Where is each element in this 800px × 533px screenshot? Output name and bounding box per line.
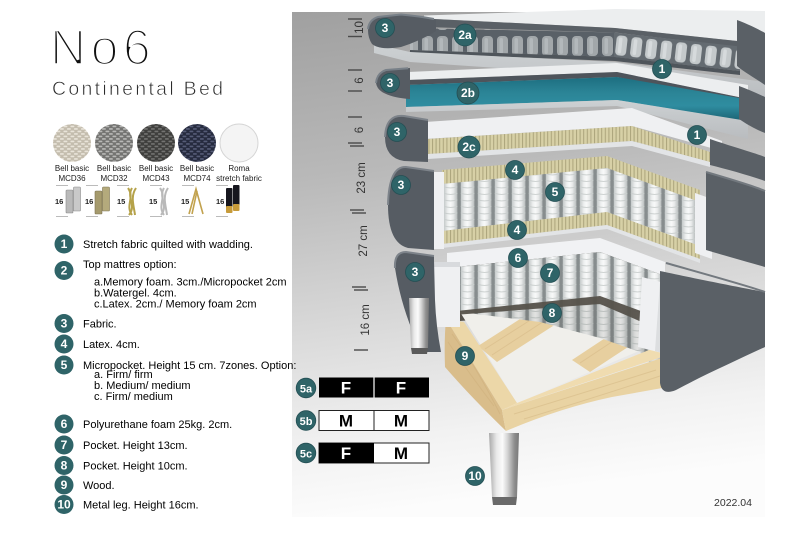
svg-text:2c: 2c <box>462 140 476 154</box>
svg-text:2: 2 <box>61 264 68 278</box>
svg-text:6: 6 <box>354 127 366 133</box>
svg-text:9: 9 <box>61 478 68 492</box>
svg-text:Pocket. Height 10cm.: Pocket. Height 10cm. <box>83 461 188 473</box>
svg-text:4: 4 <box>61 337 68 351</box>
svg-text:Fabric.: Fabric. <box>83 319 117 331</box>
svg-text:MCD36: MCD36 <box>58 174 86 183</box>
svg-text:6: 6 <box>515 251 522 265</box>
svg-text:4: 4 <box>512 163 519 177</box>
svg-text:Bell basic: Bell basic <box>97 164 131 173</box>
svg-text:3: 3 <box>412 265 419 279</box>
svg-text:Wood.: Wood. <box>83 480 115 492</box>
svg-text:1: 1 <box>659 62 666 76</box>
svg-text:Continental Bed: Continental Bed <box>52 78 225 100</box>
svg-text:16: 16 <box>216 197 224 206</box>
svg-text:Roma: Roma <box>228 164 250 173</box>
svg-text:Polyurethane foam 25kg. 2cm.: Polyurethane foam 25kg. 2cm. <box>83 419 232 431</box>
svg-text:MCD43: MCD43 <box>142 174 170 183</box>
svg-text:stretch fabric: stretch fabric <box>216 174 262 183</box>
svg-text:MCD32: MCD32 <box>100 174 128 183</box>
svg-text:c.Latex. 2cm./ Memory foam 2cm: c.Latex. 2cm./ Memory foam 2cm <box>94 299 257 311</box>
svg-text:10: 10 <box>354 21 366 34</box>
svg-text:1: 1 <box>61 237 68 251</box>
svg-text:3: 3 <box>394 125 401 139</box>
svg-text:Top mattres option:: Top mattres option: <box>83 259 177 271</box>
svg-text:2b: 2b <box>461 86 475 100</box>
svg-text:F: F <box>341 444 351 463</box>
svg-text:Bell basic: Bell basic <box>180 164 214 173</box>
svg-text:Bell basic: Bell basic <box>139 164 173 173</box>
svg-text:15: 15 <box>149 197 157 206</box>
svg-text:8: 8 <box>61 459 68 473</box>
svg-text:8: 8 <box>549 306 556 320</box>
svg-text:MCD74: MCD74 <box>183 174 211 183</box>
svg-text:M: M <box>339 412 353 431</box>
svg-text:10: 10 <box>468 469 482 483</box>
svg-text:27 cm: 27 cm <box>358 225 370 256</box>
svg-text:M: M <box>394 412 408 431</box>
svg-text:3: 3 <box>398 178 405 192</box>
svg-text:23 cm: 23 cm <box>356 162 368 193</box>
svg-text:c. Firm/ medium: c. Firm/ medium <box>94 391 173 403</box>
svg-text:5: 5 <box>552 185 559 199</box>
svg-text:2022.04: 2022.04 <box>714 497 752 509</box>
svg-text:7: 7 <box>547 266 554 280</box>
svg-text:Pocket. Height 13cm.: Pocket. Height 13cm. <box>83 440 188 452</box>
svg-text:16 cm: 16 cm <box>360 304 372 335</box>
svg-text:6: 6 <box>354 77 366 83</box>
svg-text:5b: 5b <box>300 416 313 428</box>
svg-text:Bell basic: Bell basic <box>55 164 89 173</box>
svg-text:3: 3 <box>382 21 389 35</box>
svg-text:5: 5 <box>61 358 68 372</box>
svg-text:F: F <box>396 379 406 398</box>
svg-text:6: 6 <box>61 417 68 431</box>
svg-text:5a: 5a <box>300 384 313 396</box>
svg-text:7: 7 <box>61 438 68 452</box>
svg-text:9: 9 <box>462 349 469 363</box>
svg-text:2a: 2a <box>458 28 472 42</box>
svg-text:Metal leg. Height 16cm.: Metal leg. Height 16cm. <box>83 500 199 512</box>
svg-text:10: 10 <box>57 498 71 512</box>
svg-text:16: 16 <box>55 197 63 206</box>
svg-text:4: 4 <box>514 223 521 237</box>
svg-text:Latex. 4cm.: Latex. 4cm. <box>83 339 140 351</box>
svg-text:1: 1 <box>694 128 701 142</box>
svg-text:16: 16 <box>85 197 93 206</box>
svg-text:No6: No6 <box>50 20 155 76</box>
svg-text:Stretch fabric quilted with wa: Stretch fabric quilted with wadding. <box>83 239 253 251</box>
svg-text:M: M <box>394 444 408 463</box>
svg-text:15: 15 <box>181 197 189 206</box>
svg-text:15: 15 <box>117 197 125 206</box>
svg-text:3: 3 <box>61 317 68 331</box>
svg-text:3: 3 <box>387 76 394 90</box>
svg-text:5c: 5c <box>300 449 312 461</box>
svg-text:F: F <box>341 379 351 398</box>
